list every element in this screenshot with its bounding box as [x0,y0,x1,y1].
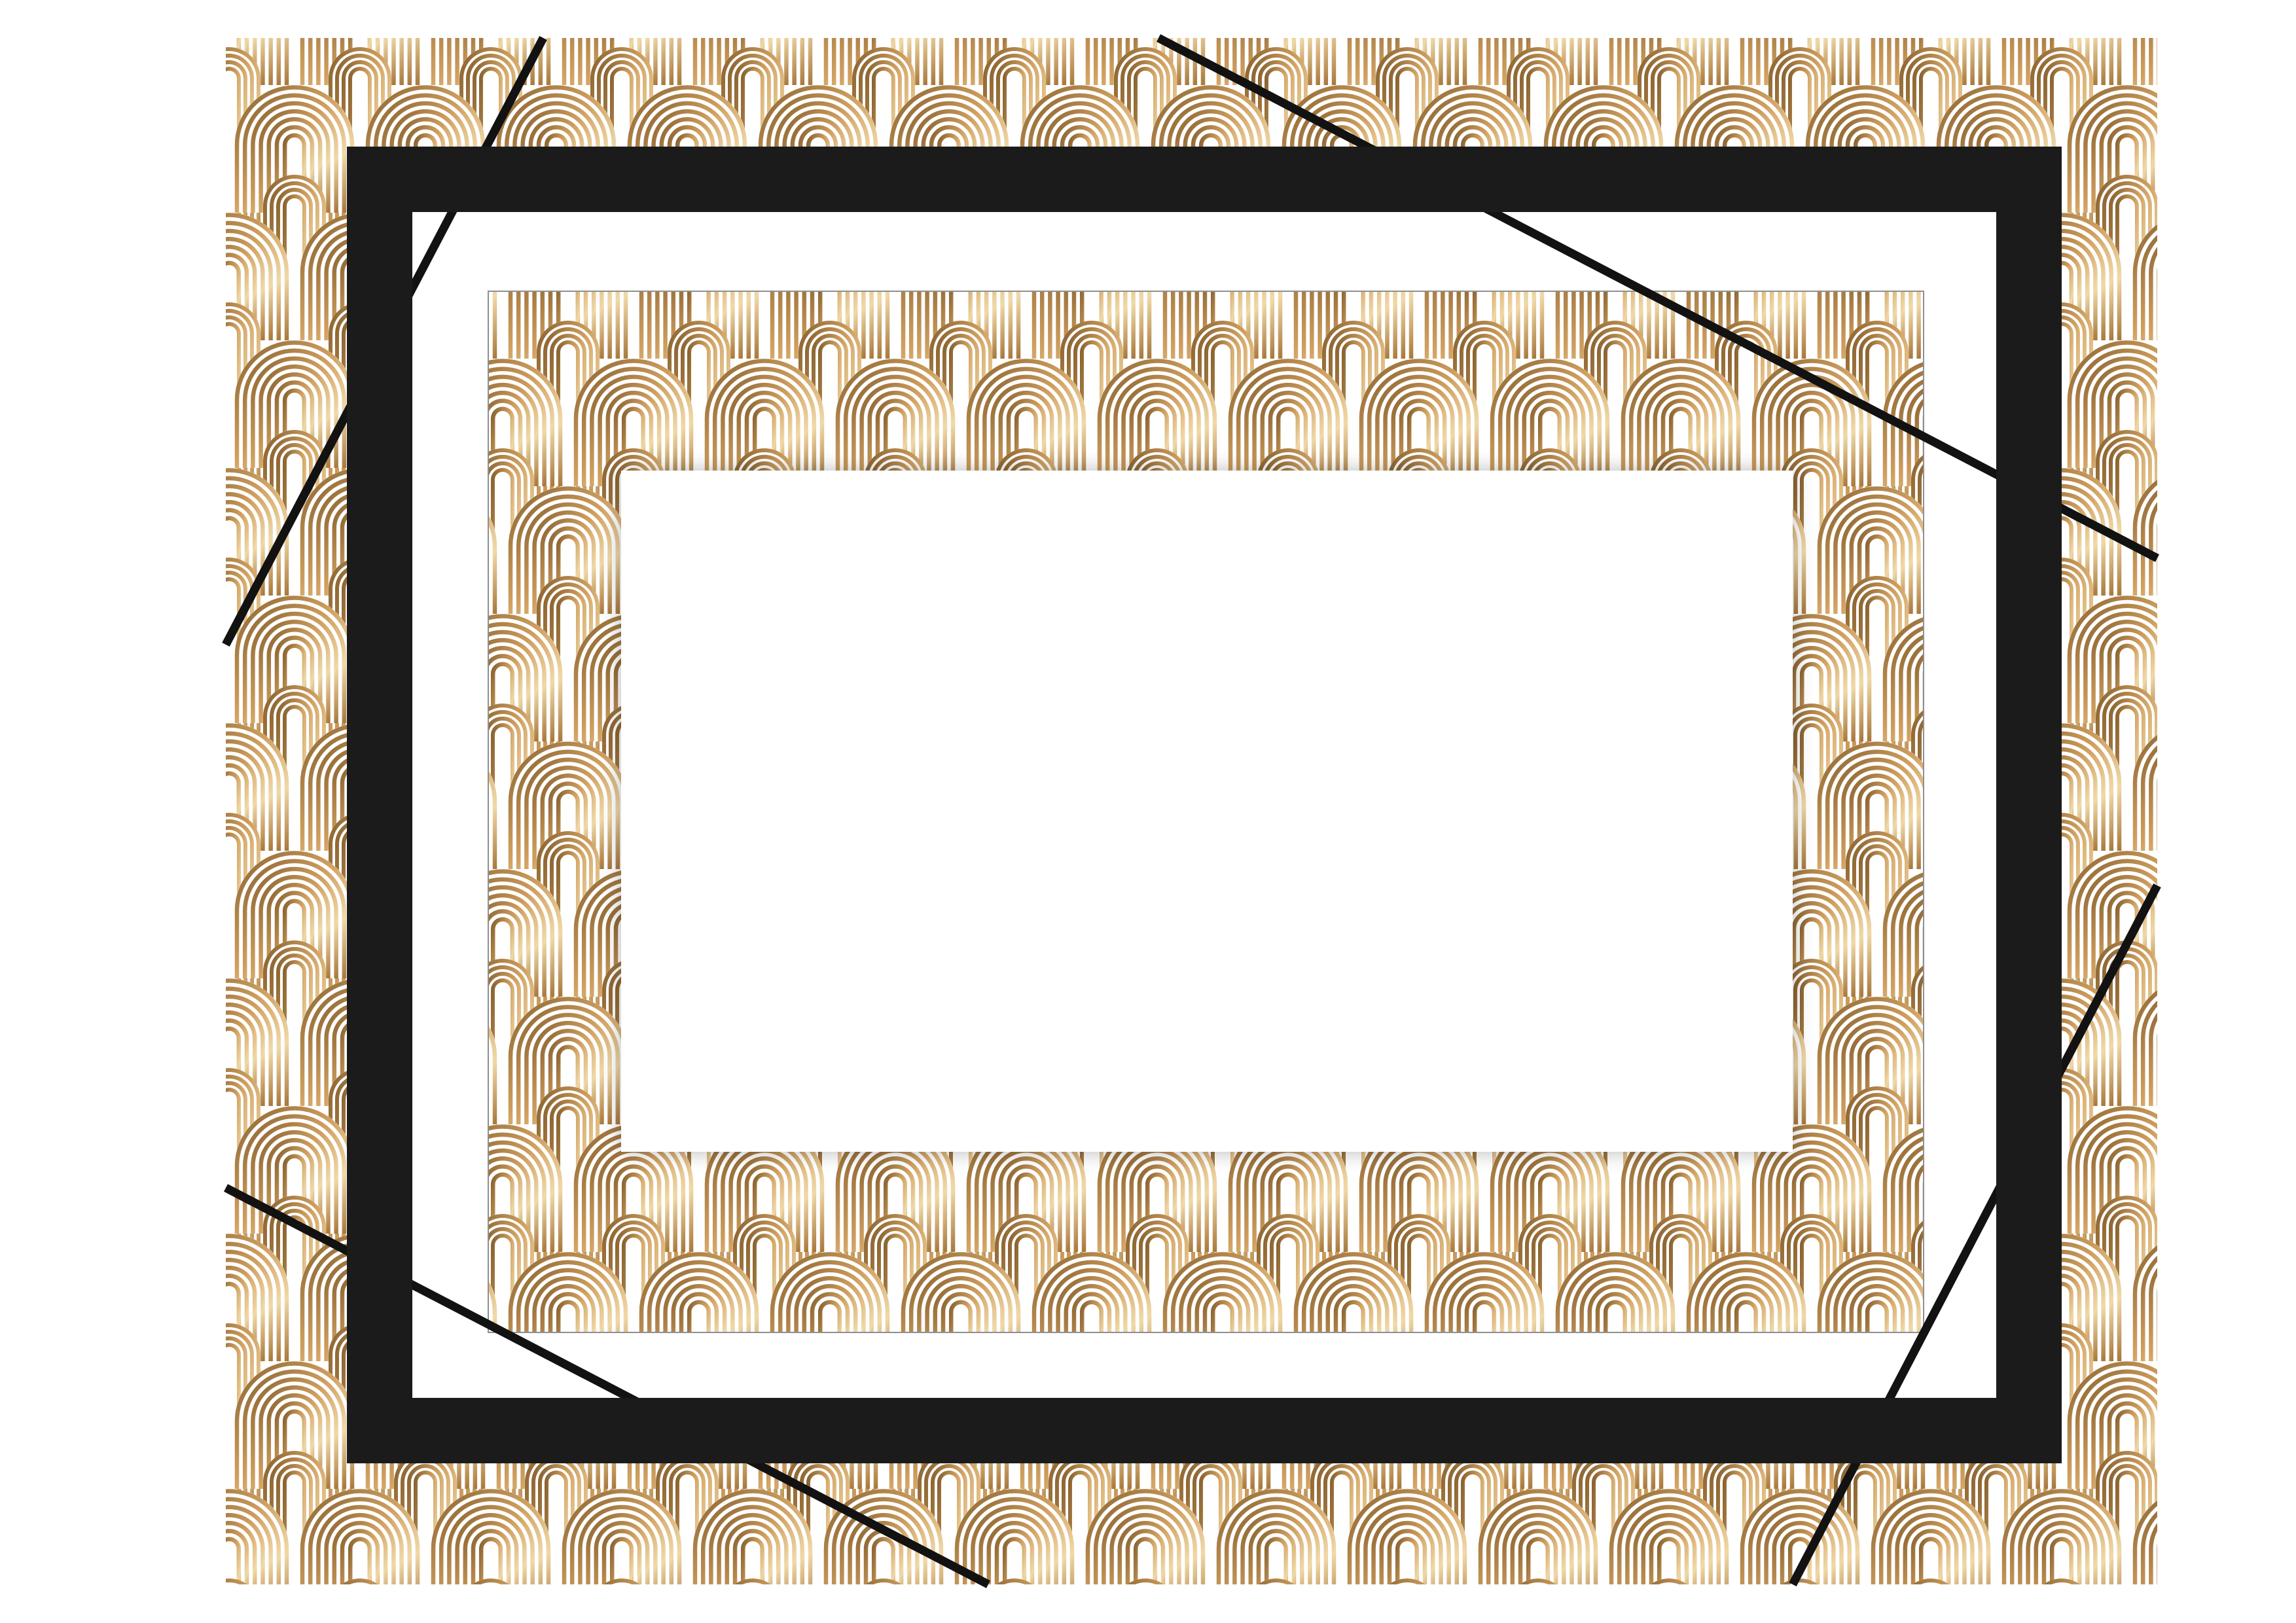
black-picture-frame [347,147,2062,1463]
art-deco-frame-page [0,0,2296,1623]
